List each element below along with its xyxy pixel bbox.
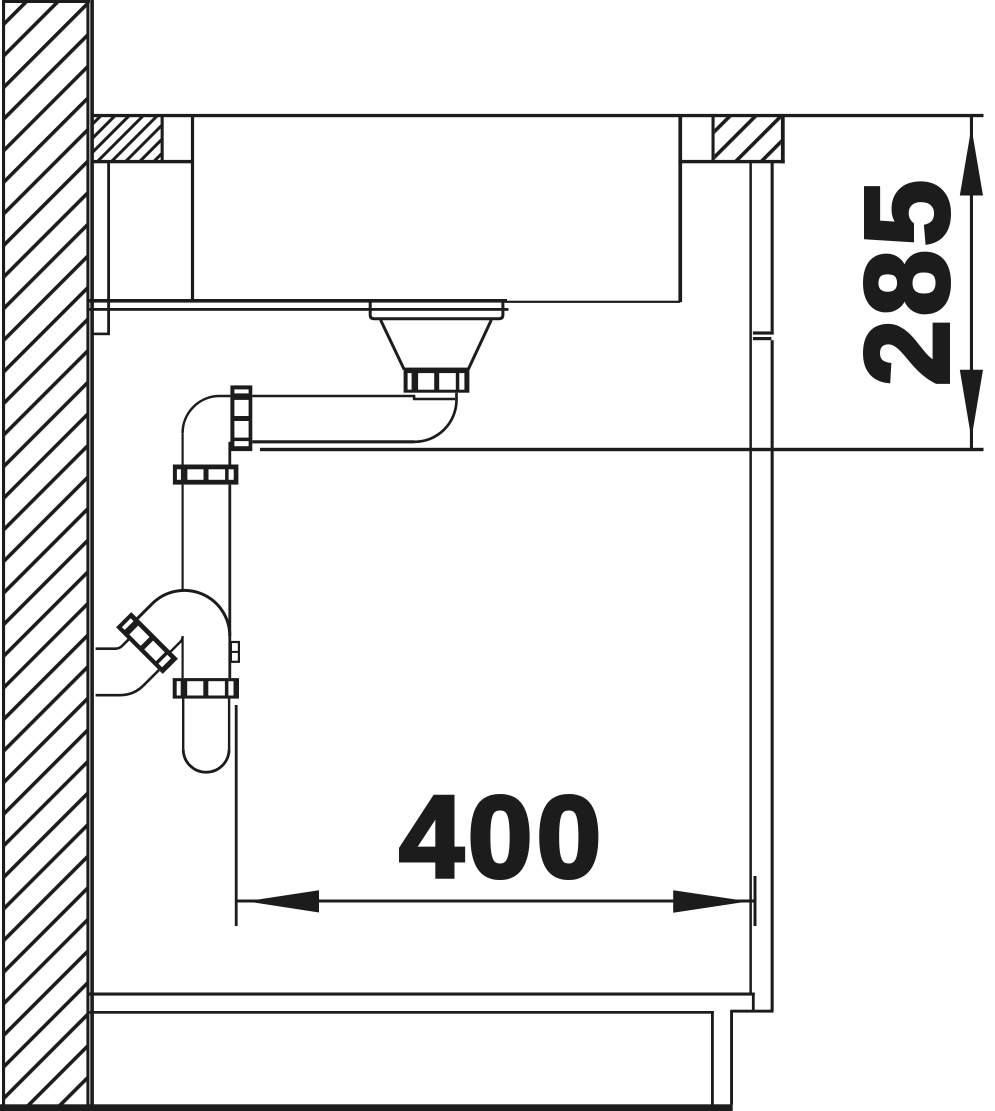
svg-text:285: 285 — [841, 176, 974, 386]
svg-text:400: 400 — [399, 772, 605, 902]
